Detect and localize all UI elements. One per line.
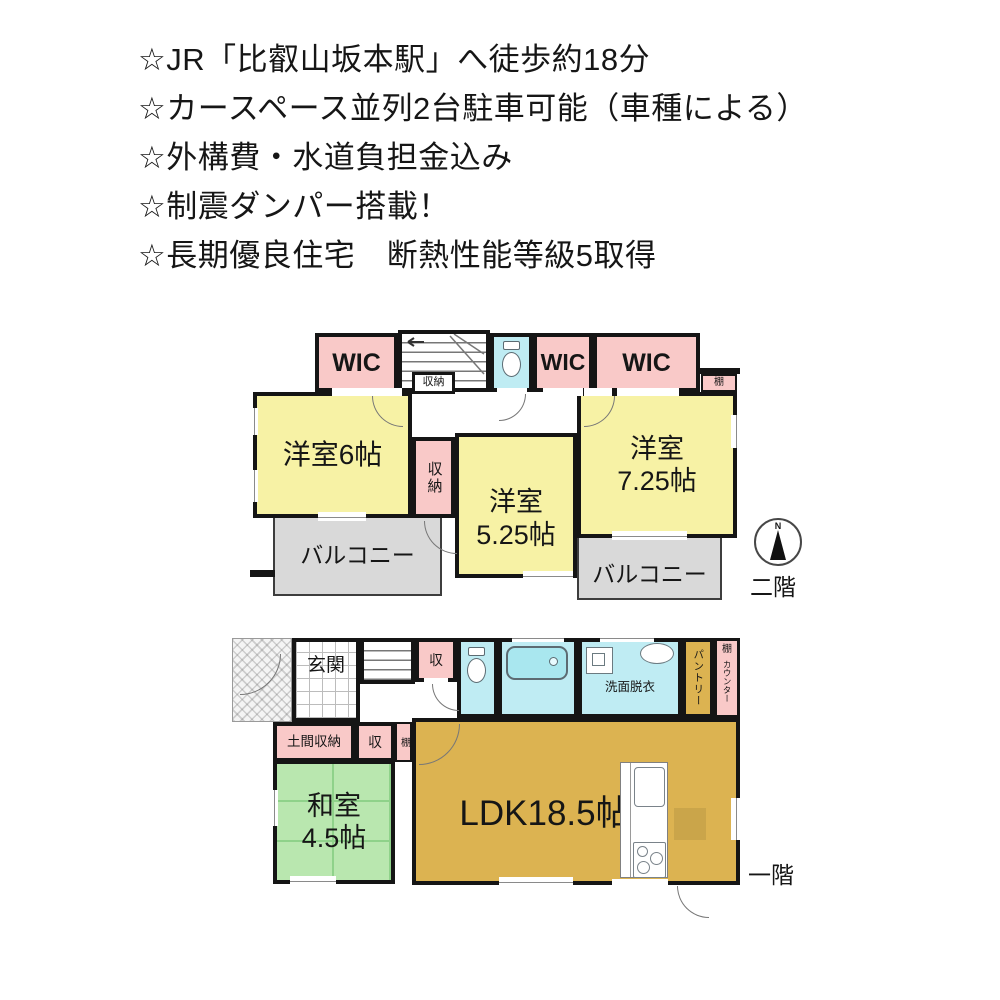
stove-burner-icon <box>637 861 650 874</box>
floor1-label: 一階 <box>748 856 794 890</box>
window <box>612 531 687 540</box>
window <box>249 408 258 435</box>
wall-stub-2f <box>250 570 275 577</box>
shelf-label: 棚 <box>714 377 724 389</box>
highlight-line-5: ☆長期優良住宅 断熱性能等級5取得 <box>138 230 808 279</box>
stair-closet-label: 収納 <box>423 376 445 389</box>
wic-label: WIC <box>622 348 671 378</box>
flyer-page: ☆JR「比叡山坂本駅」へ徒歩約18分 ☆カースペース並列2台駐車可能（車種による… <box>0 0 1000 1000</box>
kitchen-sink-icon <box>634 767 665 807</box>
shelf-1f-mid: 棚 <box>395 722 412 762</box>
highlight-line-2: ☆カースペース並列2台駐車可能（車種による） <box>138 83 808 132</box>
bedroom-725-size: 7.25帖 <box>617 465 697 497</box>
counter-label: カウンター <box>722 656 732 703</box>
bedroom-6-label: 洋室6帖 <box>283 438 383 472</box>
window <box>600 634 654 642</box>
shelf-2f: 棚 <box>701 374 737 392</box>
doma-storage-label: 土間収納 <box>287 734 341 750</box>
balcony-label: バルコニー <box>300 542 415 570</box>
stove-burner-icon <box>650 852 663 865</box>
shelf-label: 棚 <box>398 737 410 747</box>
closet-2f: 収納 <box>412 437 455 518</box>
washitsu-size: 4.5帖 <box>302 822 367 854</box>
shelf-label: 棚 <box>722 641 732 656</box>
balcony-2f-right: バルコニー <box>577 536 722 600</box>
window <box>512 634 564 642</box>
pantry: パントリー <box>682 638 714 718</box>
toilet-icon <box>468 647 485 656</box>
bedroom-525-name: 洋室 <box>476 486 556 518</box>
window <box>523 571 573 580</box>
washing-machine-icon <box>592 653 605 666</box>
window <box>318 512 366 521</box>
closet-1f-top: 収 <box>415 638 457 682</box>
doma-storage: 土間収納 <box>273 722 355 762</box>
door-opening <box>374 388 402 396</box>
closet-label: 収納 <box>425 461 443 495</box>
wic-room-1: WIC <box>315 333 398 392</box>
floor2-label: 二階 <box>750 568 796 602</box>
window <box>269 790 278 826</box>
wic-label: WIC <box>332 348 381 378</box>
door-opening <box>543 388 583 396</box>
door-opening <box>617 388 679 396</box>
pantry-label: パントリー <box>692 649 705 707</box>
window <box>731 798 740 840</box>
shelf-counter: 棚 カウンター <box>714 638 740 718</box>
washroom-label: 洗面脱衣 <box>582 676 678 695</box>
compass: N <box>754 518 802 566</box>
sink-icon <box>640 643 674 664</box>
furniture-shadow <box>674 808 706 840</box>
bedroom-525-size: 5.25帖 <box>476 519 556 551</box>
highlight-line-4: ☆制震ダンパー搭載！ <box>138 181 808 230</box>
staircase-1f <box>360 638 415 684</box>
washitsu: 和室 4.5帖 <box>273 760 395 884</box>
balcony-label: バルコニー <box>592 547 707 589</box>
bathtub-icon <box>506 646 568 680</box>
balcony-2f-left: バルコニー <box>273 516 442 596</box>
closet-label: 収 <box>429 652 443 669</box>
closet-1f-mid: 収 <box>355 722 395 762</box>
bathtub-drain-icon <box>549 657 558 666</box>
closet-label: 収 <box>368 734 382 751</box>
wic-label: WIC <box>541 349 586 377</box>
washitsu-name: 和室 <box>302 790 367 822</box>
window <box>249 470 258 502</box>
wic-room-3: WIC <box>593 333 700 392</box>
stove-burner-icon <box>637 846 648 857</box>
window <box>290 876 336 885</box>
stair-closet-2f: 収納 <box>412 372 455 394</box>
toilet-icon <box>503 341 520 350</box>
window <box>499 877 573 886</box>
wic-room-2: WIC <box>533 333 593 392</box>
compass-needle-icon <box>770 530 786 560</box>
door-opening <box>584 388 612 396</box>
genkan-label: 玄関 <box>307 655 345 706</box>
toilet-icon <box>467 658 486 683</box>
genkan: 玄関 <box>292 638 360 722</box>
door-arc <box>499 394 526 421</box>
highlights-block: ☆JR「比叡山坂本駅」へ徒歩約18分 ☆カースペース並列2台駐車可能（車種による… <box>138 34 808 279</box>
window <box>731 415 740 448</box>
bedroom-525: 洋室 5.25帖 <box>455 433 577 578</box>
toilet-icon <box>502 352 521 377</box>
door-arc <box>432 684 459 711</box>
exterior-door-arc <box>677 886 709 918</box>
highlight-line-3: ☆外構費・水道負担金込み <box>138 132 808 181</box>
highlight-line-1: ☆JR「比叡山坂本駅」へ徒歩約18分 <box>138 34 808 83</box>
bedroom-725-name: 洋室 <box>617 433 697 465</box>
kitchen-wall-gap <box>612 879 668 886</box>
